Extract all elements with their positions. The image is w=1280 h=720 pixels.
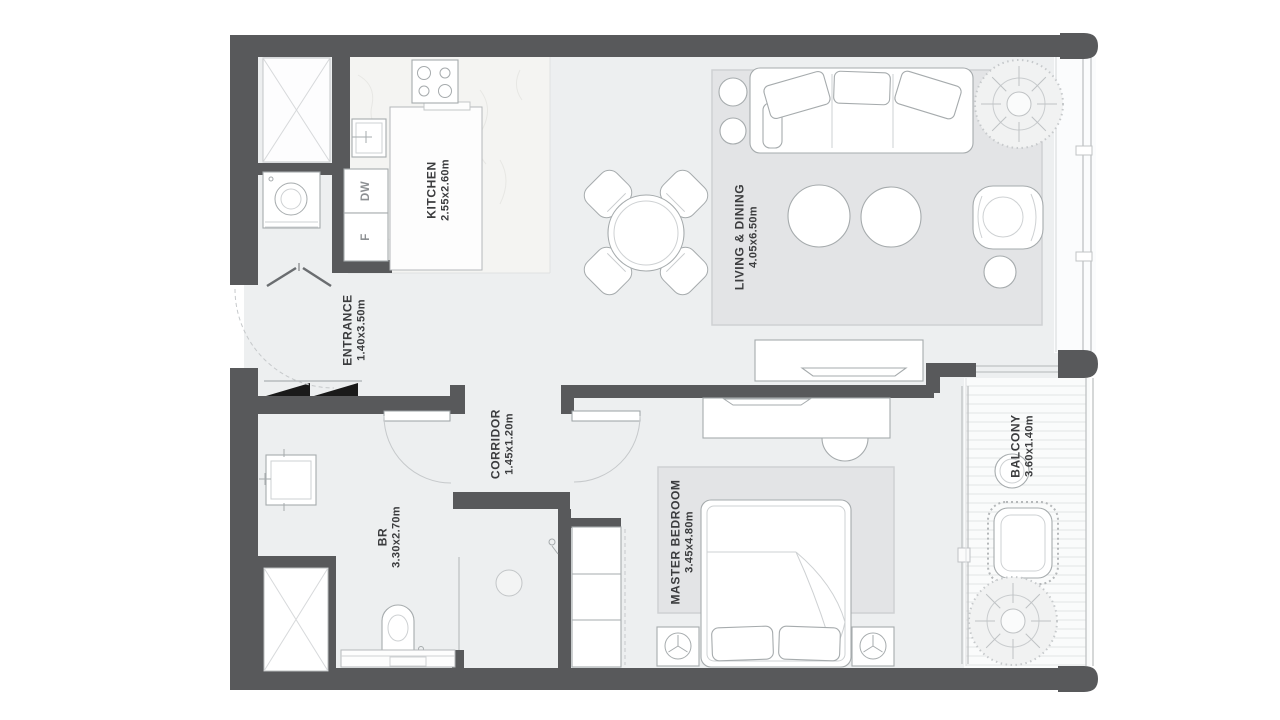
pillow (711, 626, 773, 661)
window-mullion (1076, 252, 1092, 261)
wall-cap (1060, 33, 1098, 59)
sink-icon (352, 119, 386, 157)
side-table (720, 118, 746, 144)
bedroom-door-leaf (572, 411, 640, 421)
tv-icon (802, 368, 906, 376)
plant-icon (975, 60, 1063, 148)
tv-console (755, 340, 923, 381)
vanity-sink (259, 449, 316, 511)
pillow (778, 626, 840, 661)
coffee-table (788, 185, 850, 247)
fridge-box (344, 213, 388, 261)
sofa (750, 68, 973, 153)
dishwasher-box (344, 169, 388, 213)
floor-plan-page: KITCHEN 2.55x2.60m LIVING & DINING 4.05x… (0, 0, 1280, 720)
plant-icon (969, 577, 1057, 665)
wardrobe (572, 527, 625, 667)
bathroom-counter (341, 650, 455, 667)
bathroom-door-leaf (384, 411, 450, 421)
armchair (973, 186, 1043, 249)
wall-cap (1058, 666, 1098, 692)
washing-machine-icon (263, 172, 320, 228)
lamp-icon (665, 633, 691, 659)
dining-table (608, 195, 684, 271)
coffee-table (861, 187, 921, 247)
bed (701, 500, 851, 667)
window-mullion (1076, 146, 1092, 155)
sliding-door-handle (958, 548, 970, 562)
floor-plan-drawing (0, 0, 1280, 720)
shower-drain-icon (496, 570, 522, 596)
wall-cap (1058, 350, 1098, 378)
lamp-icon (860, 633, 886, 659)
stove-icon (412, 60, 458, 103)
side-table (719, 78, 747, 106)
side-table (984, 256, 1016, 288)
desk (703, 398, 890, 438)
kitchen-walkway (390, 107, 482, 270)
wicker-chair (988, 502, 1058, 584)
